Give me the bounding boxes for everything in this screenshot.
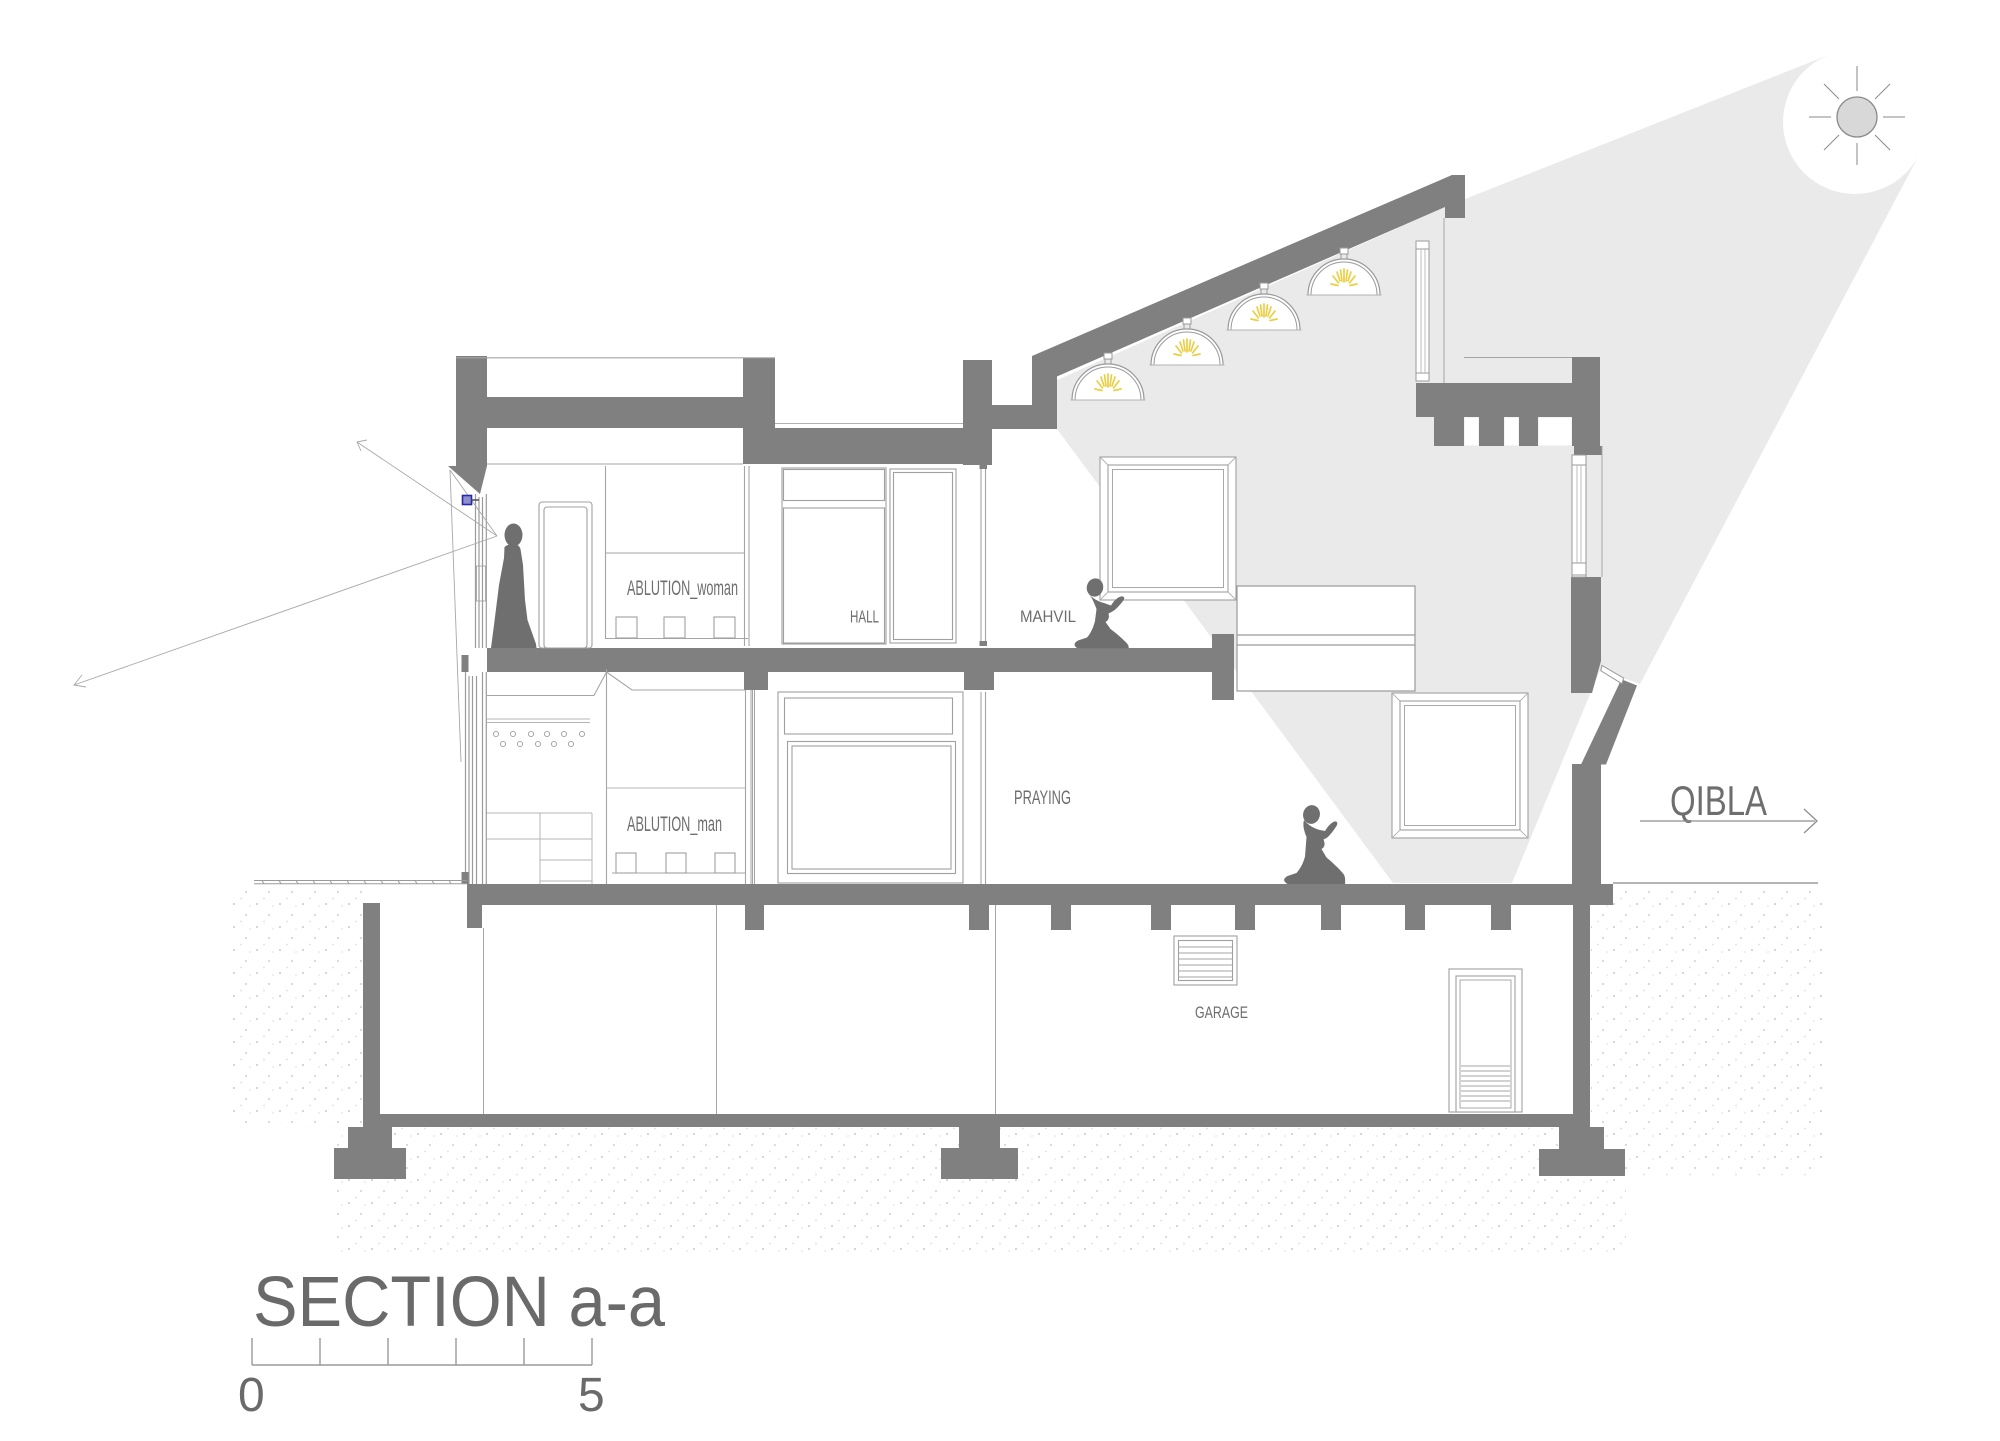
svg-text:0: 0: [238, 1369, 265, 1422]
svg-text:ABLUTION_woman: ABLUTION_woman: [627, 577, 738, 600]
svg-text:QIBLA: QIBLA: [1670, 777, 1767, 824]
svg-text:PRAYING: PRAYING: [1014, 787, 1071, 809]
svg-text:GARAGE: GARAGE: [1195, 1003, 1248, 1022]
svg-text:5: 5: [578, 1369, 605, 1422]
svg-text:ABLUTION_man: ABLUTION_man: [627, 813, 722, 836]
svg-text:HALL: HALL: [850, 607, 879, 627]
svg-text:MAHVIL: MAHVIL: [1020, 607, 1076, 626]
svg-text:SECTION a-a: SECTION a-a: [253, 1263, 665, 1342]
